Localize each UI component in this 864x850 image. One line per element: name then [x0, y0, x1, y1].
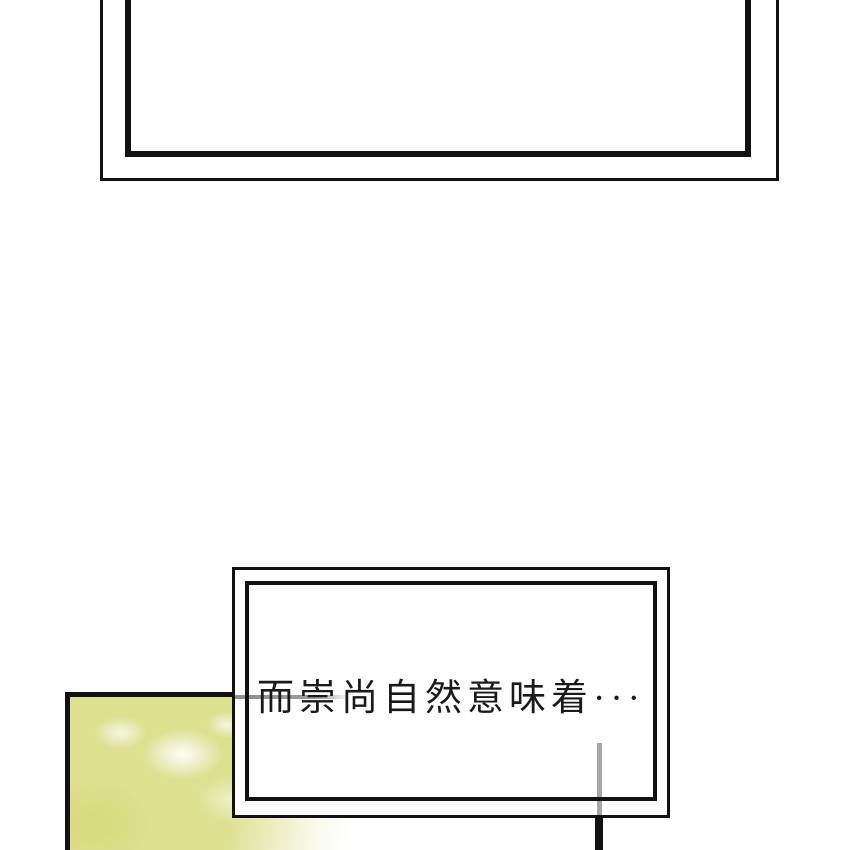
speech-box: 而崇尚自然意味着···	[232, 567, 670, 818]
speech-text: 而崇尚自然意味着···	[257, 680, 645, 717]
top-panel-inner-frame	[125, 0, 751, 157]
black-panel-connector-line	[595, 818, 603, 850]
speech-box-inner-frame: 而崇尚自然意味着···	[245, 581, 657, 801]
comic-page: 而崇尚自然意味着···	[0, 0, 864, 850]
